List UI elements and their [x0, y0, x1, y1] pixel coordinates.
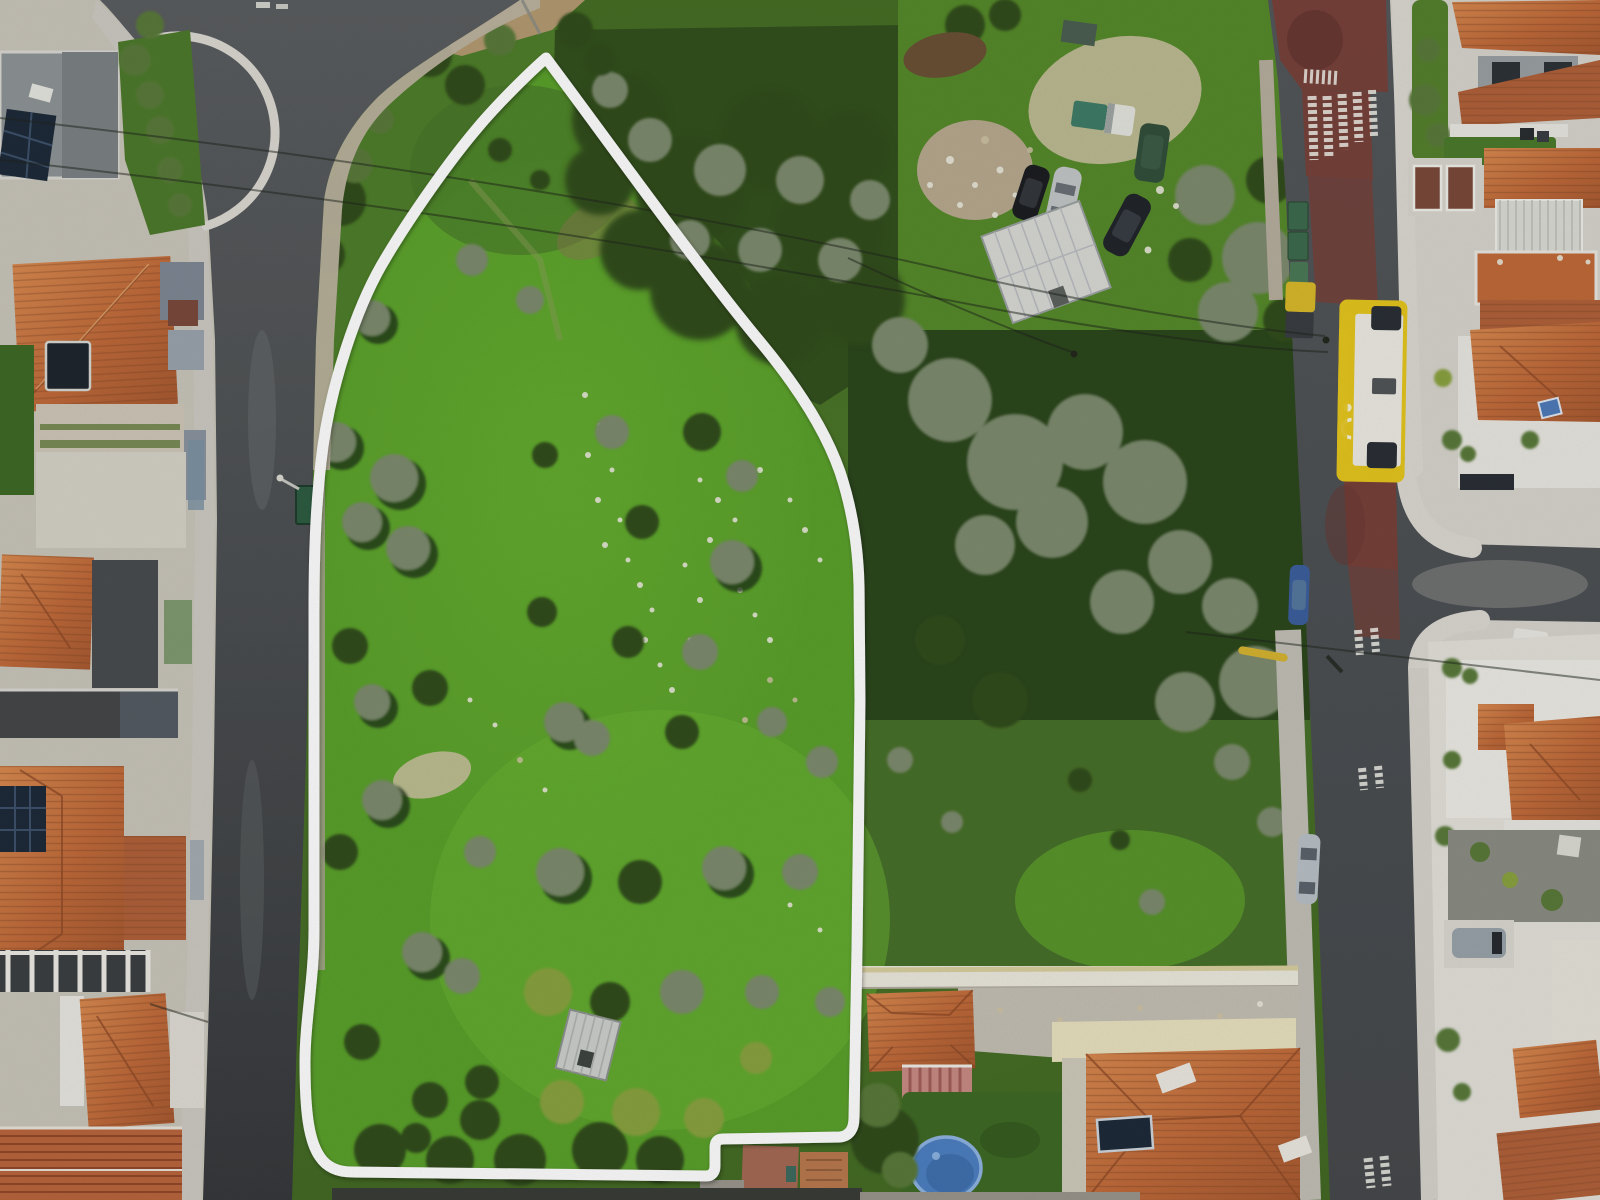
- aerial-photo: [0, 0, 1600, 1200]
- aerial-photo-canvas: [0, 0, 1600, 1200]
- photo-grain: [0, 0, 1600, 1200]
